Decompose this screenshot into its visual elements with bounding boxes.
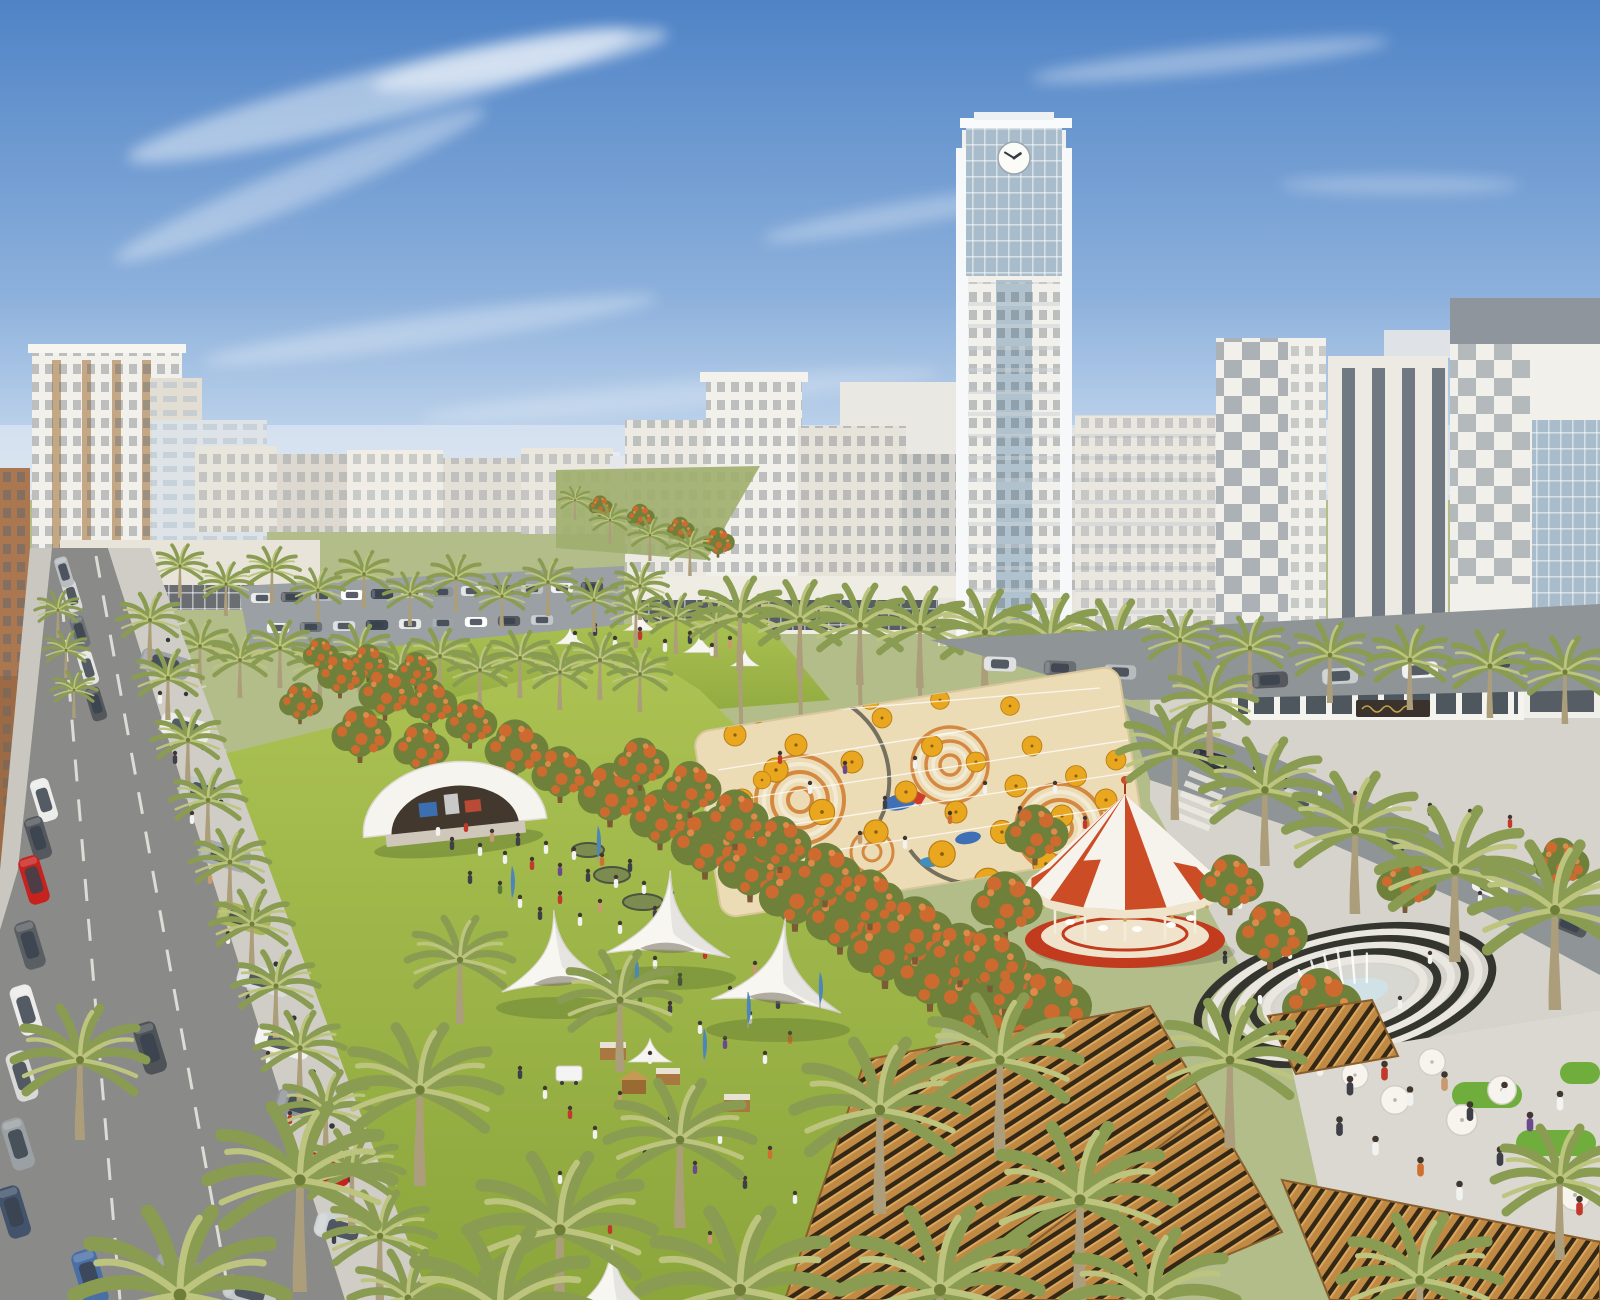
clock-tower: [938, 112, 1092, 646]
clock-face: [998, 142, 1030, 174]
aerial-render: [0, 0, 1600, 1300]
storefront-sign: [1356, 700, 1430, 717]
